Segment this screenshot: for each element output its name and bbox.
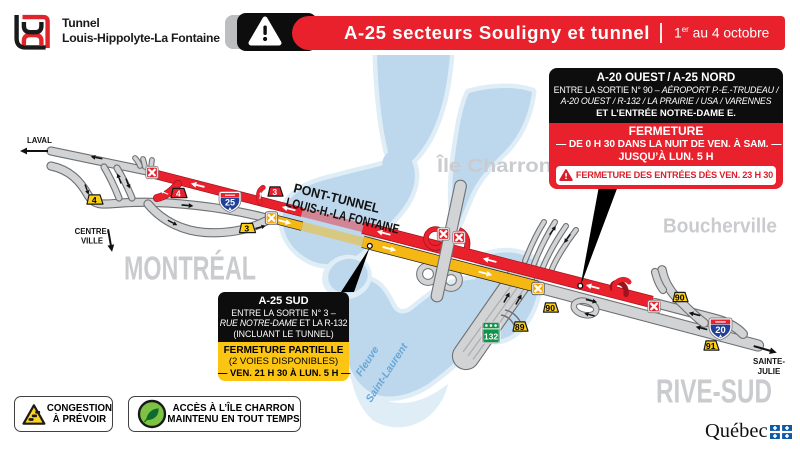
svg-text:SAINTE-: SAINTE- [753, 357, 785, 366]
svg-text:Boucherville: Boucherville [663, 215, 777, 238]
svg-text:3: 3 [272, 187, 277, 197]
svg-text:90: 90 [675, 292, 685, 302]
svg-text:20: 20 [715, 325, 726, 336]
svg-text:JULIE: JULIE [758, 367, 781, 376]
svg-text:91: 91 [706, 341, 716, 351]
svg-text:LAVAL: LAVAL [27, 136, 52, 145]
svg-text:MONTRÉAL: MONTRÉAL [124, 250, 256, 287]
svg-text:RIVE-SUD: RIVE-SUD [656, 373, 772, 410]
svg-text:90: 90 [545, 303, 555, 313]
svg-text:CENTRE-: CENTRE- [75, 227, 110, 236]
svg-text:89: 89 [515, 322, 525, 332]
svg-text:Île Charron: Île Charron [436, 155, 552, 177]
svg-text:4: 4 [176, 188, 181, 198]
svg-text:132: 132 [484, 331, 499, 341]
svg-text:4: 4 [92, 195, 97, 205]
svg-text:VILLE: VILLE [81, 237, 103, 246]
svg-text:25: 25 [225, 198, 235, 208]
svg-text:3: 3 [244, 223, 249, 233]
